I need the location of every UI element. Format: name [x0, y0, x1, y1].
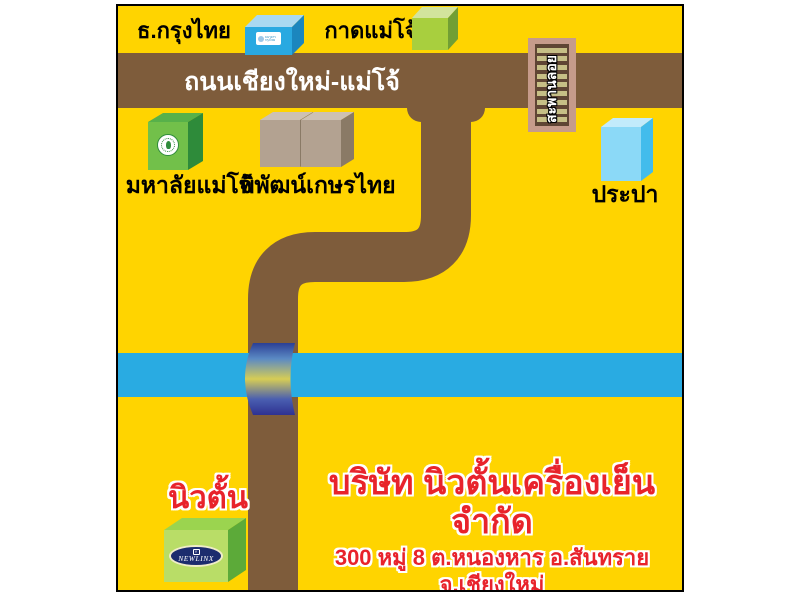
bridge	[245, 343, 295, 415]
university-building	[148, 113, 203, 175]
waterworks-label: ประปา	[565, 180, 684, 209]
junction-fillet-left	[407, 108, 421, 122]
pipat-building-right	[301, 112, 354, 172]
market-building	[412, 7, 458, 55]
overpass-sign: สะพานลอย	[528, 38, 576, 132]
company-info: บริษัท นิวตั้นเครื่องเย็น จำกัด 300 หมู่…	[294, 464, 684, 592]
road-name-label: ถนนเชียงใหม่-แม่โจ้	[172, 67, 412, 98]
krungthai-logo-icon: ธนาคารกรุงไทย	[256, 32, 281, 45]
waterworks-building	[601, 118, 653, 186]
newton-label: นิวตั้น	[147, 479, 269, 518]
junction-fillet-right	[471, 108, 485, 122]
krungthai-logo-text: ธนาคารกรุงไทย	[265, 36, 279, 42]
newlinx-logo-text: NEWLINX	[178, 555, 214, 563]
university-seal-icon	[157, 134, 179, 156]
newlinx-logo-icon: Y NEWLINX	[169, 545, 223, 567]
bank-building: ธนาคารกรุงไทย	[245, 15, 304, 60]
bank-label: ธ.กรุงไทย	[124, 17, 244, 45]
company-address: 300 หมู่ 8 ต.หนองหาร อ.สันทราย จ.เชียงให…	[294, 545, 684, 592]
location-map: ถนนเชียงใหม่-แม่โจ้ สะพานลอย ธ.กรุงไทย ธ…	[116, 4, 684, 592]
overpass-label: สะพานลอย	[541, 41, 563, 137]
river	[118, 353, 682, 397]
company-name: บริษัท นิวตั้นเครื่องเย็น จำกัด	[294, 464, 684, 542]
pipat-label: พิพัฒน์เกษรไทย	[235, 171, 400, 200]
newton-building: Y NEWLINX	[164, 518, 246, 587]
